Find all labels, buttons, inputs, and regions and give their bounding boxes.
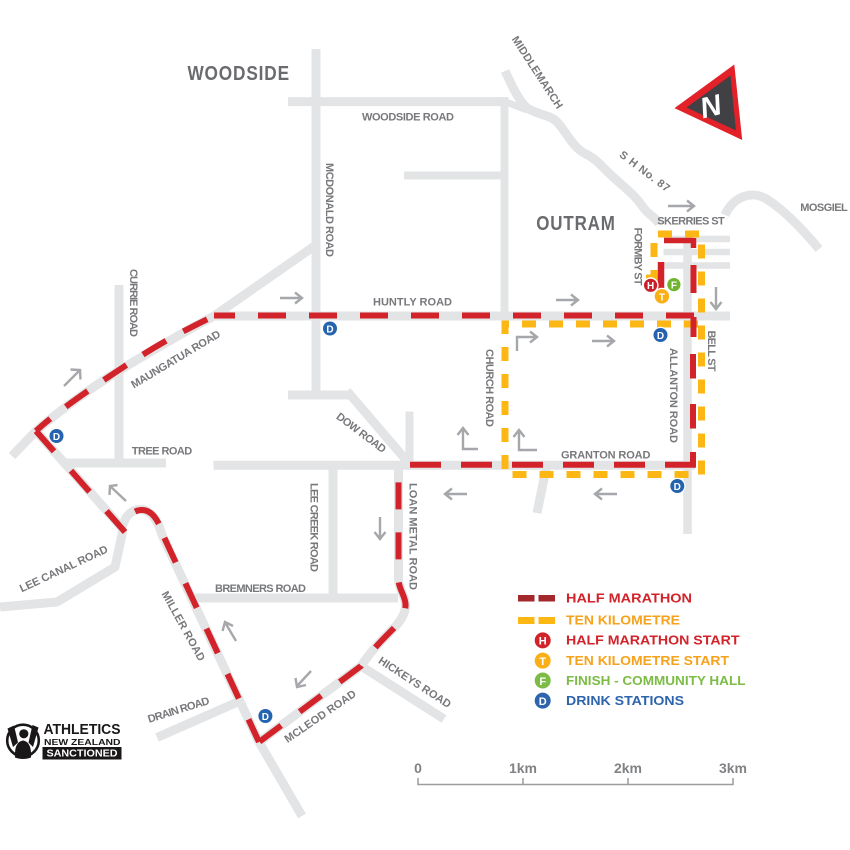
- svg-text:H: H: [647, 281, 654, 292]
- svg-text:D: D: [674, 482, 681, 493]
- svg-text:T: T: [659, 292, 665, 303]
- svg-text:H: H: [539, 636, 547, 648]
- svg-text:CHURCH ROAD: CHURCH ROAD: [483, 349, 495, 427]
- svg-text:HUNTLY ROAD: HUNTLY ROAD: [373, 297, 452, 309]
- svg-text:LEE CREEK ROAD: LEE CREEK ROAD: [308, 483, 320, 572]
- svg-text:D: D: [326, 325, 333, 336]
- svg-text:WOODSIDE ROAD: WOODSIDE ROAD: [362, 112, 454, 124]
- svg-text:DRINK STATIONS: DRINK STATIONS: [566, 693, 684, 708]
- svg-text:SKERRIES ST: SKERRIES ST: [657, 216, 725, 228]
- svg-text:F: F: [671, 281, 677, 292]
- svg-text:FINISH - COMMUNITY HALL: FINISH - COMMUNITY HALL: [566, 673, 746, 688]
- svg-text:CURRIE ROAD: CURRIE ROAD: [127, 269, 139, 337]
- svg-text:TEN KILOMETRE START: TEN KILOMETRE START: [566, 653, 729, 668]
- svg-text:TREE ROAD: TREE ROAD: [132, 446, 193, 458]
- svg-text:D: D: [53, 432, 60, 443]
- svg-text:SANCTIONED: SANCTIONED: [47, 748, 118, 760]
- svg-text:F: F: [539, 676, 546, 688]
- svg-text:HALF MARATHON: HALF MARATHON: [566, 591, 692, 606]
- svg-text:D: D: [262, 712, 269, 723]
- svg-text:BELL ST: BELL ST: [705, 331, 717, 372]
- svg-text:BREMNERS ROAD: BREMNERS ROAD: [215, 583, 306, 595]
- svg-text:GRANTON ROAD: GRANTON ROAD: [561, 450, 651, 462]
- svg-text:T: T: [539, 656, 546, 668]
- svg-text:LOAN METAL ROAD: LOAN METAL ROAD: [407, 483, 419, 590]
- svg-text:NEW ZEALAND: NEW ZEALAND: [44, 738, 121, 747]
- svg-text:D: D: [657, 331, 664, 342]
- svg-text:ALLANTON ROAD: ALLANTON ROAD: [667, 348, 679, 443]
- svg-text:MOSGIEL: MOSGIEL: [800, 202, 848, 214]
- svg-text:0: 0: [414, 760, 422, 776]
- svg-text:WOODSIDE: WOODSIDE: [187, 63, 290, 85]
- svg-text:TEN KILOMETRE: TEN KILOMETRE: [566, 613, 680, 628]
- svg-text:MCDONALD ROAD: MCDONALD ROAD: [323, 163, 335, 257]
- svg-text:FORMBY ST: FORMBY ST: [632, 228, 644, 286]
- svg-text:D: D: [539, 696, 547, 708]
- svg-text:OUTRAM: OUTRAM: [536, 213, 616, 235]
- svg-text:HALF MARATHON START: HALF MARATHON START: [566, 633, 740, 648]
- svg-text:3km: 3km: [719, 760, 747, 776]
- svg-text:2km: 2km: [614, 760, 642, 776]
- svg-text:1km: 1km: [509, 760, 537, 776]
- svg-text:ATHLETICS: ATHLETICS: [44, 722, 121, 738]
